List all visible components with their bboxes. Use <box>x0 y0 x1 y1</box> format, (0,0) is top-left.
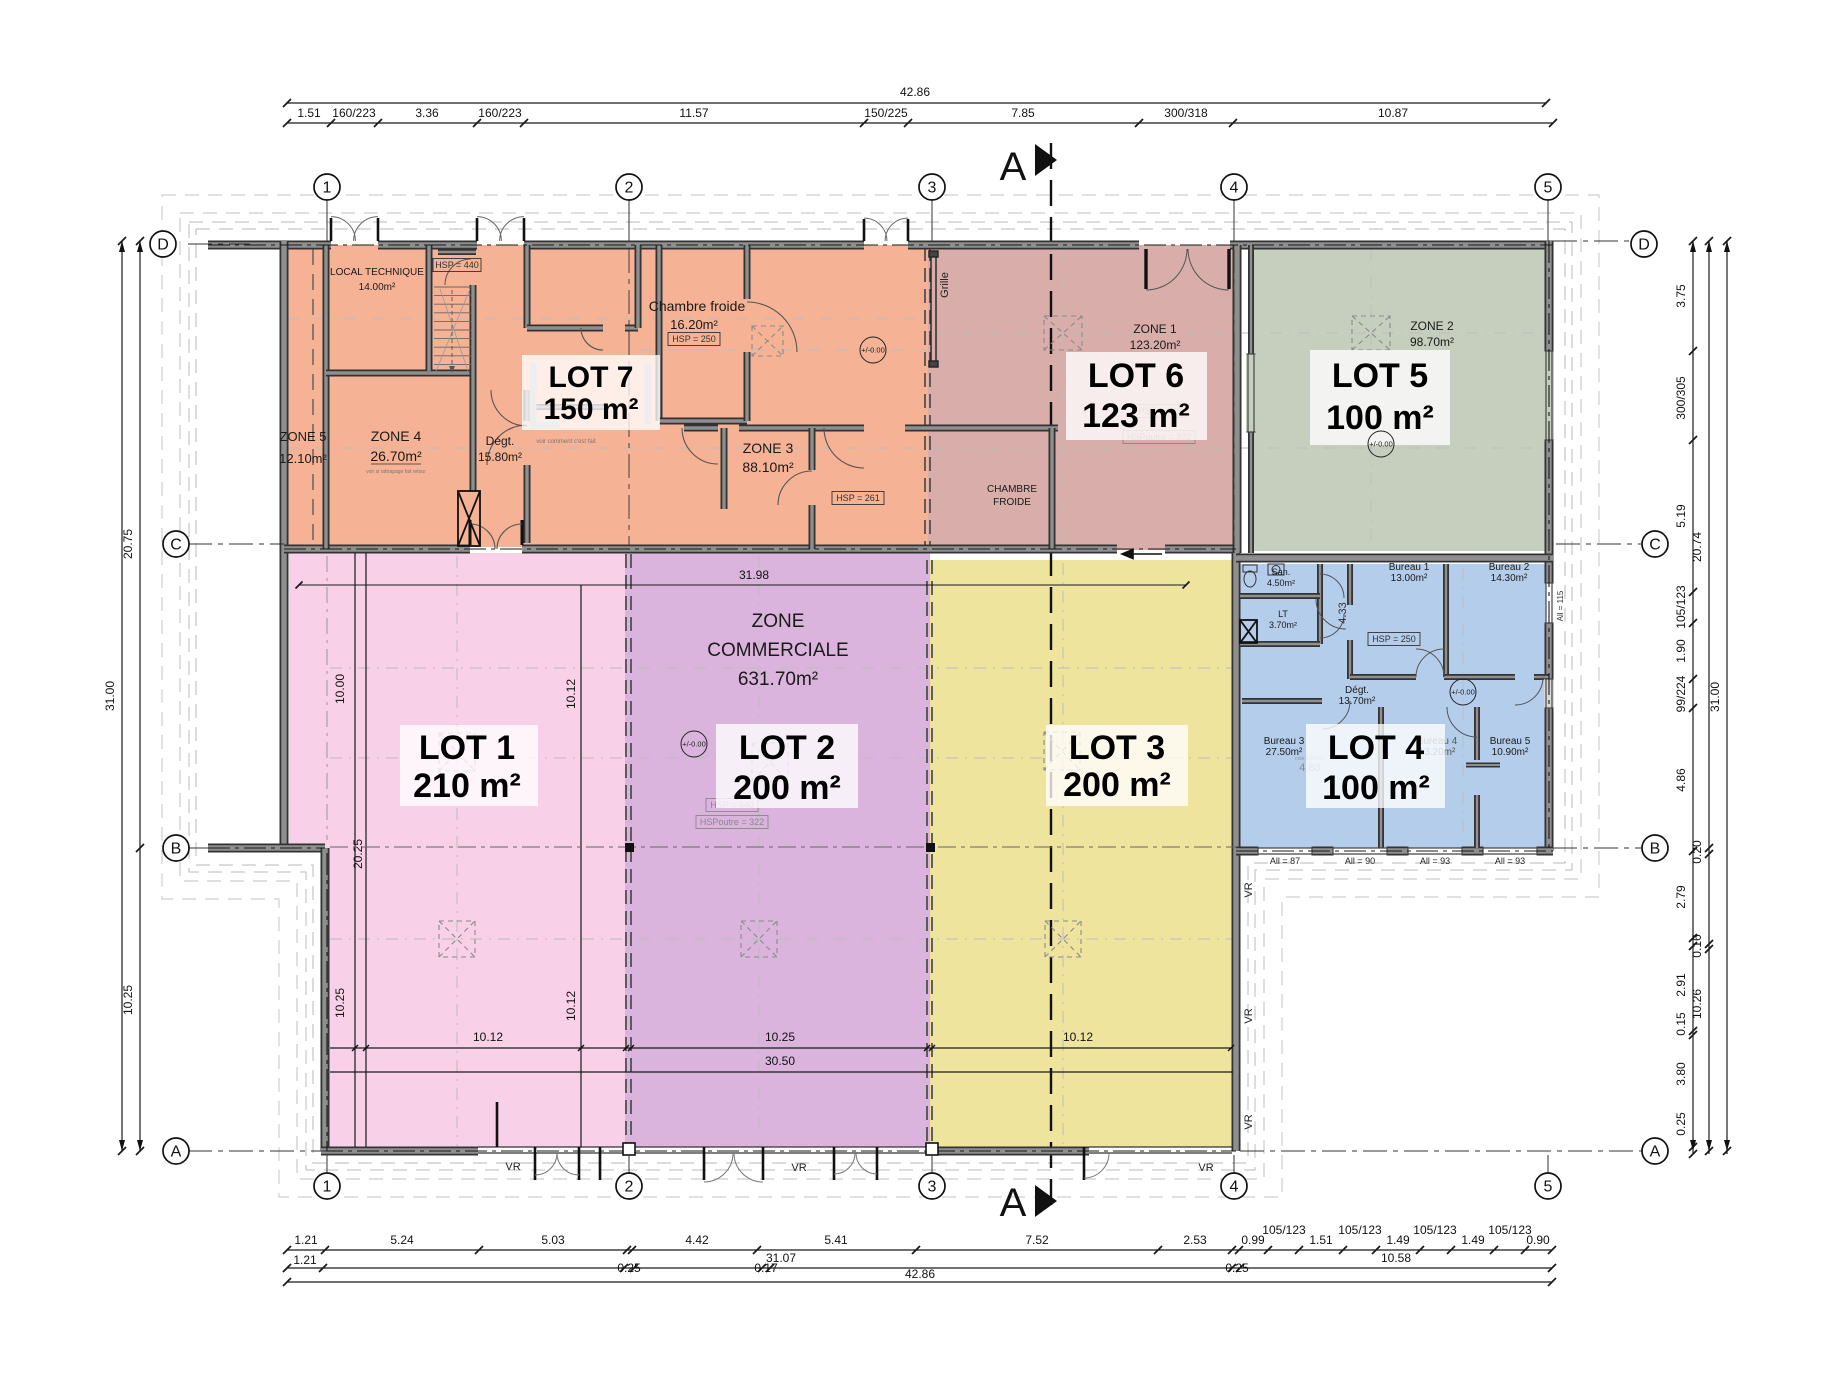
svg-text:All = 93: All = 93 <box>1495 856 1525 866</box>
svg-text:20.74: 20.74 <box>1690 532 1704 562</box>
svg-text:voir comment c'est fait: voir comment c'est fait <box>536 439 596 445</box>
svg-text:12.10m²: 12.10m² <box>279 451 327 466</box>
svg-text:160/223: 160/223 <box>478 106 522 120</box>
svg-text:+/-0.00: +/-0.00 <box>1369 440 1393 449</box>
svg-text:D: D <box>1638 237 1650 254</box>
svg-text:5.19: 5.19 <box>1674 504 1688 528</box>
svg-text:VR: VR <box>1243 1114 1255 1129</box>
svg-text:11.57: 11.57 <box>679 106 708 120</box>
svg-text:HSP = 440: HSP = 440 <box>435 260 479 270</box>
svg-text:20.25: 20.25 <box>351 839 365 869</box>
svg-text:2: 2 <box>625 180 634 197</box>
svg-text:1: 1 <box>323 1179 332 1196</box>
svg-text:+/-0.00: +/-0.00 <box>861 346 885 355</box>
svg-text:105/123: 105/123 <box>1338 1223 1382 1237</box>
svg-text:0.25: 0.25 <box>1225 1261 1249 1275</box>
svg-text:105/123: 105/123 <box>1674 585 1688 629</box>
svg-text:13.70m²: 13.70m² <box>1339 696 1376 707</box>
svg-text:ZONE: ZONE <box>752 611 805 632</box>
svg-text:99/224: 99/224 <box>1674 675 1688 712</box>
svg-text:All = 90: All = 90 <box>1345 856 1375 866</box>
svg-text:All = 115: All = 115 <box>1556 590 1565 621</box>
svg-text:10.25: 10.25 <box>121 985 135 1015</box>
svg-text:HSP = 250: HSP = 250 <box>1372 634 1416 644</box>
svg-text:LOT 6: LOT 6 <box>1088 357 1184 395</box>
svg-text:10.25: 10.25 <box>333 988 347 1018</box>
svg-text:42.86: 42.86 <box>900 85 930 99</box>
svg-text:210 m²: 210 m² <box>413 767 521 805</box>
svg-text:0.15: 0.15 <box>1674 1012 1688 1036</box>
svg-text:4: 4 <box>1230 1179 1239 1196</box>
svg-text:105/123: 105/123 <box>1262 1223 1306 1237</box>
svg-text:VR: VR <box>791 1162 806 1174</box>
svg-text:A: A <box>1650 1144 1661 1161</box>
svg-text:10.87: 10.87 <box>1378 106 1408 120</box>
svg-text:VR: VR <box>1243 1008 1255 1023</box>
svg-text:3.70m²: 3.70m² <box>1269 620 1297 630</box>
svg-text:Bureau 3: Bureau 3 <box>1264 736 1305 747</box>
svg-text:15.80m²: 15.80m² <box>478 450 522 464</box>
svg-text:10.90m²: 10.90m² <box>1492 747 1529 758</box>
svg-text:A: A <box>1000 145 1027 189</box>
svg-text:10.12: 10.12 <box>473 1030 503 1044</box>
svg-text:3: 3 <box>928 180 937 197</box>
svg-text:CHAMBRE: CHAMBRE <box>987 484 1037 495</box>
svg-text:150 m²: 150 m² <box>543 393 638 426</box>
svg-text:3.80: 3.80 <box>1674 1062 1688 1086</box>
svg-text:2: 2 <box>625 1179 634 1196</box>
svg-text:31.00: 31.00 <box>103 681 117 711</box>
svg-text:A: A <box>171 1144 182 1161</box>
svg-text:Bureau 1: Bureau 1 <box>1389 562 1430 573</box>
svg-text:4.33: 4.33 <box>1337 602 1349 623</box>
svg-text:D: D <box>157 237 169 254</box>
svg-text:10.12: 10.12 <box>564 679 578 709</box>
svg-text:COMMERCIALE: COMMERCIALE <box>707 640 848 661</box>
svg-text:HSPoutre = 322: HSPoutre = 322 <box>700 817 764 827</box>
svg-text:150/225: 150/225 <box>864 106 908 120</box>
svg-text:26.70m²: 26.70m² <box>370 448 422 464</box>
svg-text:7.52: 7.52 <box>1025 1233 1049 1247</box>
svg-text:LOT 5: LOT 5 <box>1332 357 1428 395</box>
svg-text:0.20: 0.20 <box>1690 840 1704 864</box>
svg-text:631.70m²: 631.70m² <box>738 669 818 690</box>
svg-text:VR: VR <box>505 1161 520 1173</box>
svg-text:5: 5 <box>1544 1179 1553 1196</box>
svg-text:5.41: 5.41 <box>824 1233 848 1247</box>
svg-text:13.00m²: 13.00m² <box>1391 573 1428 584</box>
svg-text:All = 93: All = 93 <box>1420 856 1450 866</box>
svg-text:ZONE 1: ZONE 1 <box>1133 322 1177 336</box>
svg-text:10.26: 10.26 <box>1690 989 1704 1019</box>
svg-text:1.51: 1.51 <box>1309 1233 1333 1247</box>
svg-text:5.03: 5.03 <box>541 1233 565 1247</box>
svg-text:3: 3 <box>928 1179 937 1196</box>
svg-text:A: A <box>1000 1181 1027 1225</box>
svg-text:Dégt.: Dégt. <box>486 434 515 448</box>
svg-text:1: 1 <box>323 180 332 197</box>
svg-text:7.85: 7.85 <box>1011 106 1035 120</box>
svg-text:14.30m²: 14.30m² <box>1491 573 1528 584</box>
svg-text:16.20m²: 16.20m² <box>670 317 718 332</box>
svg-text:5.24: 5.24 <box>390 1233 414 1247</box>
svg-text:LOT 3: LOT 3 <box>1069 729 1165 767</box>
svg-text:300/305: 300/305 <box>1674 376 1688 420</box>
svg-text:Chambre froide: Chambre froide <box>649 298 746 314</box>
svg-text:0.25: 0.25 <box>1674 1112 1688 1136</box>
svg-text:1.51: 1.51 <box>297 106 321 120</box>
svg-text:HSP = 250: HSP = 250 <box>672 334 716 344</box>
svg-text:1.21: 1.21 <box>294 1233 318 1247</box>
svg-text:HSP = 261: HSP = 261 <box>836 493 880 503</box>
svg-text:4.86: 4.86 <box>1674 768 1688 792</box>
svg-text:LOT 1: LOT 1 <box>419 729 515 767</box>
svg-text:123.20m²: 123.20m² <box>1130 338 1181 352</box>
svg-text:1.21: 1.21 <box>293 1253 317 1267</box>
svg-text:voir si rattrapage fait retour: voir si rattrapage fait retour <box>366 469 426 475</box>
svg-text:San.: San. <box>1272 567 1291 577</box>
svg-text:All = 87: All = 87 <box>1270 856 1300 866</box>
svg-text:4: 4 <box>1230 180 1239 197</box>
svg-text:5: 5 <box>1544 180 1553 197</box>
svg-text:LT: LT <box>1278 609 1288 619</box>
svg-text:31.98: 31.98 <box>739 568 769 582</box>
svg-text:105/123: 105/123 <box>1488 1223 1532 1237</box>
svg-text:LOT 7: LOT 7 <box>548 361 633 394</box>
svg-text:Bureau 2: Bureau 2 <box>1489 562 1530 573</box>
svg-text:1.49: 1.49 <box>1386 1233 1410 1247</box>
svg-text:2.91: 2.91 <box>1674 973 1688 997</box>
svg-text:VR: VR <box>1243 882 1255 897</box>
svg-text:3.36: 3.36 <box>415 106 439 120</box>
svg-text:98.70m²: 98.70m² <box>1410 335 1454 349</box>
svg-text:4.50m²: 4.50m² <box>1267 578 1295 588</box>
svg-text:31.00: 31.00 <box>1708 682 1722 712</box>
svg-text:0.25: 0.25 <box>617 1261 641 1275</box>
svg-text:105/123: 105/123 <box>1413 1223 1457 1237</box>
svg-text:LOT 4: LOT 4 <box>1328 729 1424 767</box>
svg-text:+/-0.00: +/-0.00 <box>682 740 706 749</box>
svg-text:2.79: 2.79 <box>1674 885 1688 909</box>
svg-text:123 m²: 123 m² <box>1082 397 1190 435</box>
svg-text:Grille: Grille <box>939 272 951 298</box>
svg-text:200 m²: 200 m² <box>733 769 841 807</box>
svg-text:4.42: 4.42 <box>685 1233 709 1247</box>
svg-text:10.12: 10.12 <box>1063 1030 1093 1044</box>
svg-text:88.10m²: 88.10m² <box>742 459 794 475</box>
svg-text:B: B <box>1650 841 1661 858</box>
svg-text:1.90: 1.90 <box>1674 639 1688 663</box>
svg-text:10.58: 10.58 <box>1381 1251 1411 1265</box>
svg-text:300/318: 300/318 <box>1164 106 1208 120</box>
svg-text:30.50: 30.50 <box>765 1054 795 1068</box>
svg-text:10.25: 10.25 <box>765 1030 795 1044</box>
svg-text:200 m²: 200 m² <box>1063 766 1171 804</box>
svg-text:C: C <box>170 537 182 554</box>
svg-text:B: B <box>171 841 182 858</box>
svg-text:VR: VR <box>1198 1162 1213 1174</box>
svg-text:0.16: 0.16 <box>1690 934 1704 958</box>
svg-text:ZONE 4: ZONE 4 <box>371 428 422 444</box>
svg-text:+/-0.00: +/-0.00 <box>1451 688 1475 697</box>
svg-text:FROIDE: FROIDE <box>993 497 1031 508</box>
svg-text:ZONE 5: ZONE 5 <box>280 429 327 444</box>
svg-text:ZONE 3: ZONE 3 <box>743 440 794 456</box>
svg-text:10.12: 10.12 <box>564 991 578 1021</box>
svg-text:100 m²: 100 m² <box>1322 769 1430 807</box>
svg-text:2.53: 2.53 <box>1183 1233 1207 1247</box>
svg-text:160/223: 160/223 <box>332 106 376 120</box>
svg-text:42.86: 42.86 <box>905 1267 935 1281</box>
svg-text:10.00: 10.00 <box>333 674 347 704</box>
svg-text:20.75: 20.75 <box>121 529 135 559</box>
svg-text:3.75: 3.75 <box>1674 284 1688 308</box>
svg-text:Dégt.: Dégt. <box>1345 685 1369 696</box>
svg-text:LOT 2: LOT 2 <box>739 729 835 767</box>
svg-text:LOCAL TECHNIQUE: LOCAL TECHNIQUE <box>330 267 424 278</box>
svg-text:31.07: 31.07 <box>766 1251 796 1265</box>
svg-text:1.49: 1.49 <box>1461 1233 1485 1247</box>
svg-text:14.00m²: 14.00m² <box>359 282 396 293</box>
svg-text:ZONE 2: ZONE 2 <box>1410 319 1454 333</box>
svg-text:C: C <box>1649 537 1661 554</box>
svg-text:Bureau 5: Bureau 5 <box>1490 736 1531 747</box>
